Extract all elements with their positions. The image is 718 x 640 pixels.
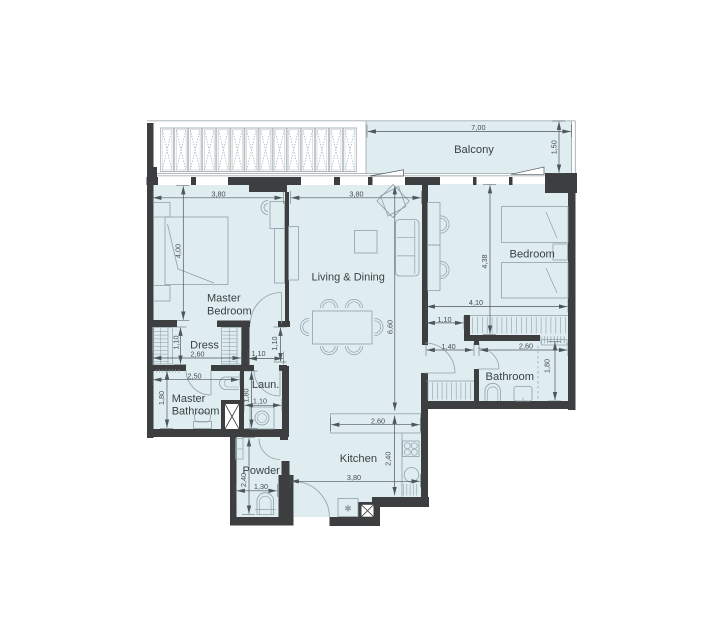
svg-text:1,50: 1,50 xyxy=(550,140,559,154)
svg-text:3,80: 3,80 xyxy=(349,190,363,199)
svg-text:4,00: 4,00 xyxy=(174,244,183,258)
svg-text:1,40: 1,40 xyxy=(441,342,455,351)
svg-text:2,50: 2,50 xyxy=(187,371,201,380)
svg-text:1,10: 1,10 xyxy=(437,315,451,324)
svg-text:1,80: 1,80 xyxy=(157,391,166,405)
svg-text:Kitchen: Kitchen xyxy=(340,453,377,465)
svg-text:6,60: 6,60 xyxy=(385,320,394,334)
svg-text:Powder: Powder xyxy=(243,465,281,477)
svg-text:Bathroom: Bathroom xyxy=(486,371,535,383)
svg-text:1,10: 1,10 xyxy=(270,336,279,350)
svg-text:1,80: 1,80 xyxy=(242,388,251,402)
svg-text:Master: Master xyxy=(172,393,206,405)
svg-text:3,80: 3,80 xyxy=(347,473,361,482)
svg-text:Master: Master xyxy=(207,292,241,304)
svg-text:Laun.: Laun. xyxy=(252,379,280,391)
svg-text:Bedroom: Bedroom xyxy=(207,305,252,317)
svg-text:4,38: 4,38 xyxy=(480,254,489,268)
svg-text:2,40: 2,40 xyxy=(384,452,393,466)
svg-text:4,10: 4,10 xyxy=(469,298,483,307)
svg-text:1,10: 1,10 xyxy=(172,335,181,349)
svg-text:1,30: 1,30 xyxy=(254,482,268,491)
svg-text:1,10: 1,10 xyxy=(253,397,267,406)
svg-text:Balcony: Balcony xyxy=(454,144,494,156)
svg-text:Bedroom: Bedroom xyxy=(509,249,554,261)
svg-text:Bathroom: Bathroom xyxy=(172,406,220,418)
svg-text:2,60: 2,60 xyxy=(519,342,533,351)
svg-text:Dress: Dress xyxy=(190,339,219,351)
svg-text:1,10: 1,10 xyxy=(251,349,265,358)
svg-text:✱: ✱ xyxy=(344,504,352,514)
svg-text:1,80: 1,80 xyxy=(543,359,552,373)
svg-text:3,80: 3,80 xyxy=(211,190,225,199)
svg-text:2,60: 2,60 xyxy=(371,416,385,425)
svg-text:Living & Dining: Living & Dining xyxy=(312,272,385,284)
svg-text:7,00: 7,00 xyxy=(471,123,485,132)
